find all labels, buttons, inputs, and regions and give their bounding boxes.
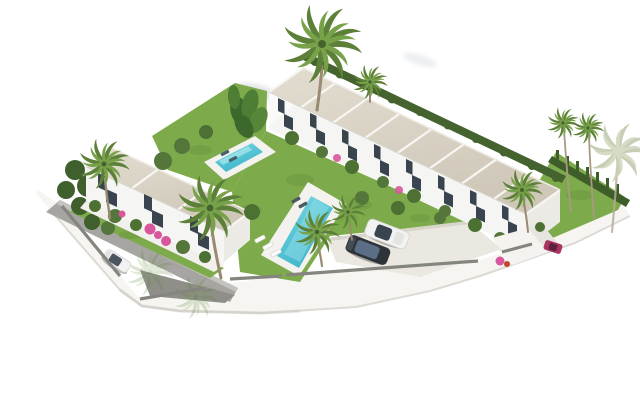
architectural-render: 3D aerial architectural rendering of a w… (0, 0, 640, 412)
render-canvas (0, 0, 640, 412)
